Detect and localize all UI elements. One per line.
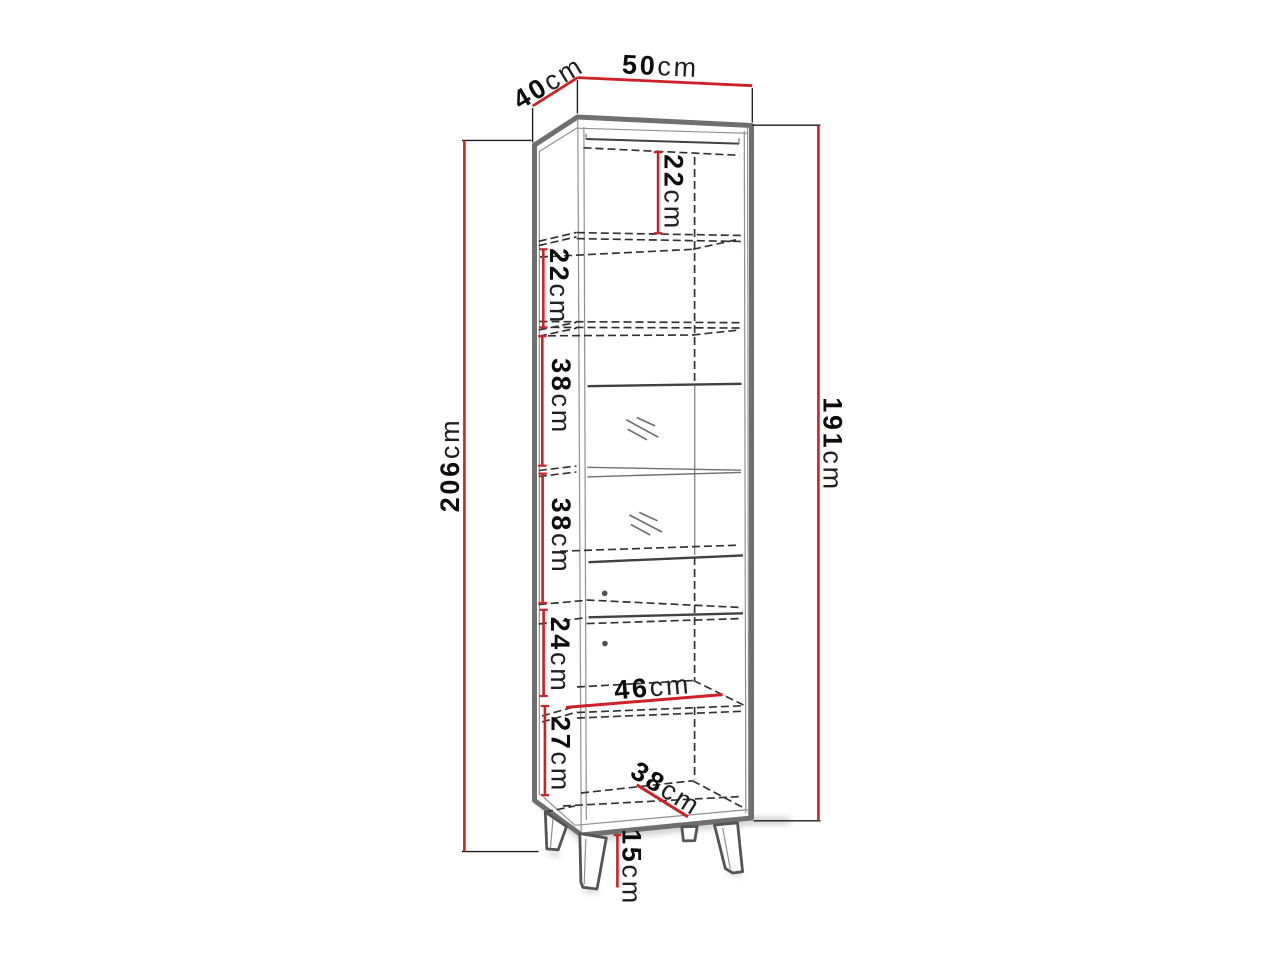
- svg-text:24cm: 24cm: [545, 617, 575, 694]
- svg-text:15cm: 15cm: [616, 829, 646, 906]
- svg-text:38cm: 38cm: [546, 358, 576, 435]
- svg-text:22cm: 22cm: [544, 248, 574, 325]
- svg-text:22cm: 22cm: [658, 154, 688, 231]
- svg-text:46cm: 46cm: [613, 669, 692, 705]
- svg-text:50cm: 50cm: [621, 49, 699, 83]
- svg-text:206cm: 206cm: [435, 418, 465, 513]
- svg-text:191cm: 191cm: [817, 397, 847, 492]
- svg-text:38cm: 38cm: [546, 498, 576, 575]
- svg-text:27cm: 27cm: [545, 716, 575, 793]
